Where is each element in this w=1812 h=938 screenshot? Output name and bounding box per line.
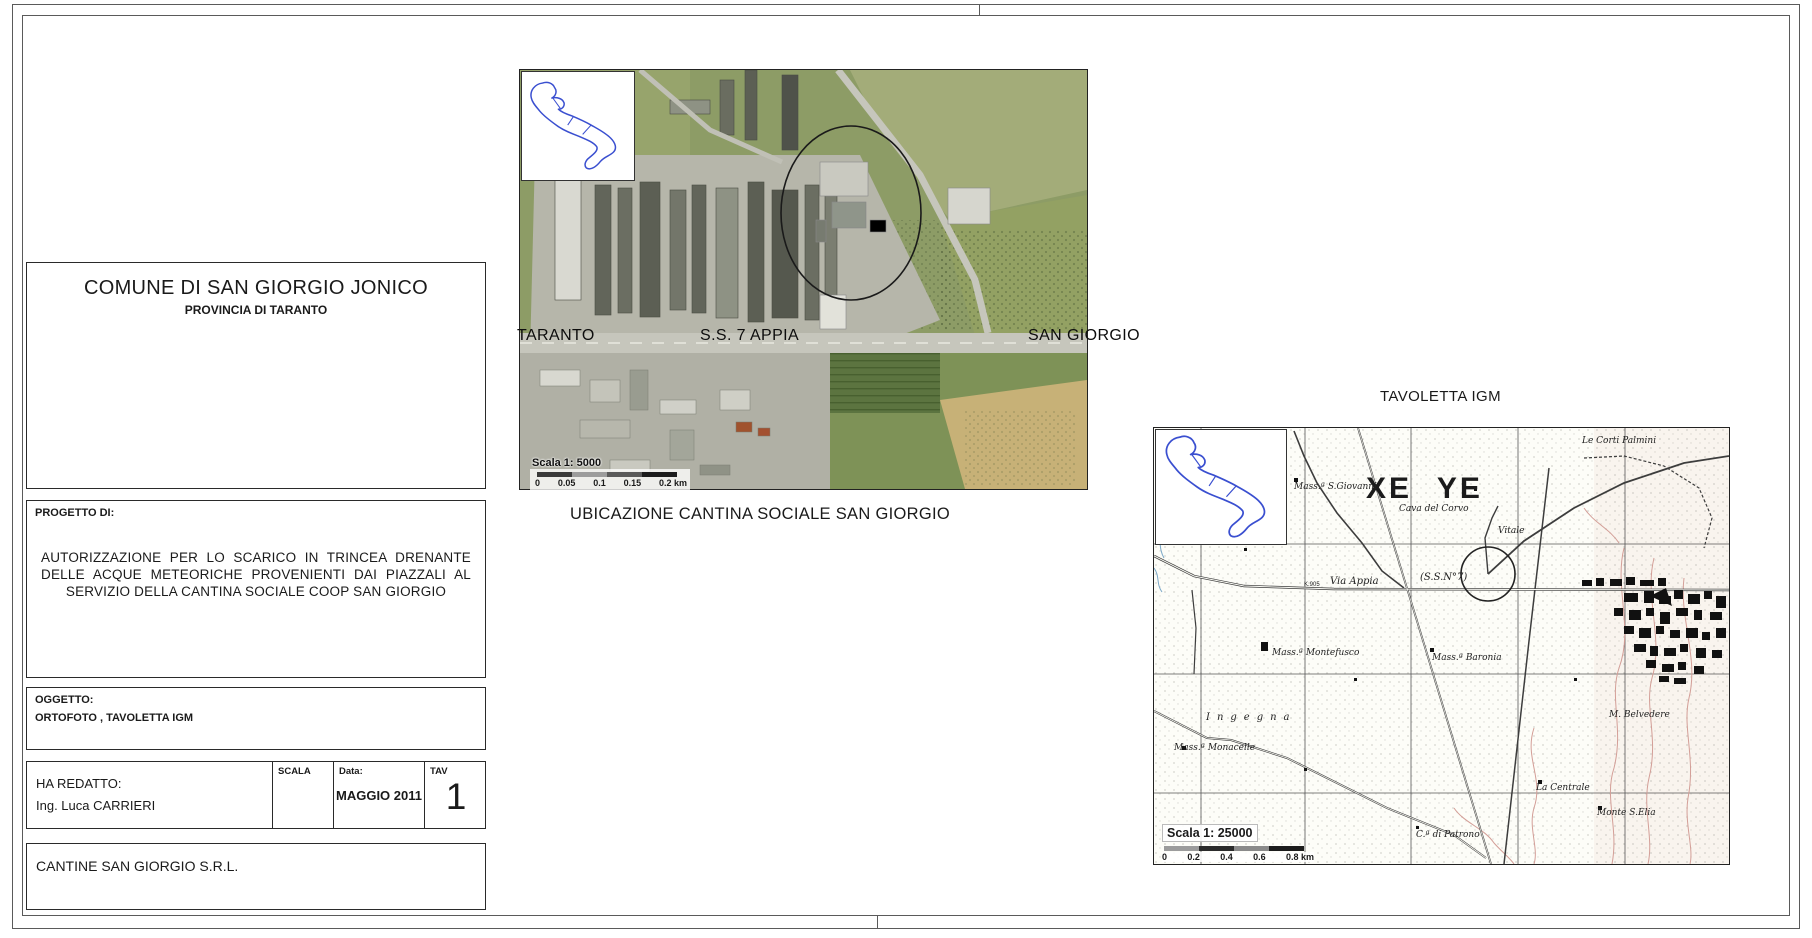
igm-toponym-label: Via Appia [1330, 576, 1379, 587]
photo-label-ss7-appia: S.S. 7 APPIA [700, 327, 799, 345]
scale-tick: 0 [535, 478, 540, 488]
igm-toponym-label: Mass.ª Montefusco [1272, 648, 1359, 658]
igm-toponym-label: Mass.ª S.Giovanni [1294, 482, 1377, 492]
igm-map: XE YE Le Corti PalminiMass.ª S.GiovanniC… [1153, 427, 1730, 865]
drawing-sheet: COMUNE DI SAN GIORGIO JONICO PROVINCIA D… [0, 0, 1812, 938]
orthophoto-map [519, 69, 1088, 490]
igm-toponym-label: Mass.ª Monacelle [1174, 743, 1255, 753]
scale-tick: 0.8 km [1286, 852, 1314, 862]
scala-label: SCALA [278, 766, 311, 777]
tav-number: 1 [425, 776, 487, 818]
scale-tick: 0.6 [1253, 852, 1266, 862]
data-cell: Data: MAGGIO 2011 [333, 762, 424, 828]
igm-toponym-label: Ingegna [1206, 712, 1297, 723]
puglia-outline-icon [522, 72, 634, 180]
progetto-label: PROGETTO DI: [35, 507, 114, 519]
data-value: MAGGIO 2011 [334, 788, 424, 803]
progetto-text: AUTORIZZAZIONE PER LO SCARICO IN TRINCEA… [41, 549, 471, 600]
scale-tick: 0.15 [624, 478, 642, 488]
igm-toponym-label: Monte S.Elia [1597, 808, 1656, 818]
igm-toponym-label: La Centrale [1536, 783, 1590, 793]
oggetto-label: OGGETTO: [35, 694, 93, 706]
title-block-header: COMUNE DI SAN GIORGIO JONICO PROVINCIA D… [26, 262, 486, 489]
redatto-box: HA REDATTO: Ing. Luca CARRIERI SCALA Dat… [26, 761, 486, 829]
igm-toponym-label: Mass.ª Baronia [1432, 653, 1502, 663]
company-name: CANTINE SAN GIORGIO S.R.L. [36, 858, 238, 874]
igm-toponym-label: Le Corti Palmini [1582, 436, 1656, 446]
redatto-name: Ing. Luca CARRIERI [36, 798, 155, 813]
igm-map-labels: Le Corti PalminiMass.ª S.GiovanniCava de… [1154, 428, 1729, 864]
ortofoto-scale-ticks: 00.050.10.150.2 km [535, 478, 687, 488]
scale-tick: 0.05 [558, 478, 576, 488]
scale-tick: 0.2 [1187, 852, 1200, 862]
scala-cell: SCALA [272, 762, 333, 828]
comune-title: COMUNE DI SAN GIORGIO JONICO [27, 277, 485, 300]
ortofoto-scale: Scala 1: 5000 00.050.10.150.2 km [530, 457, 690, 490]
oggetto-box: OGGETTO: ORTOFOTO , TAVOLETTA IGM [26, 687, 486, 750]
igm-title: TAVOLETTA IGM [1153, 388, 1728, 405]
tav-cell: TAV 1 [424, 762, 487, 828]
igm-scale-bar [1164, 846, 1304, 851]
photo-label-taranto: TARANTO [517, 327, 595, 345]
redatto-cell: HA REDATTO: Ing. Luca CARRIERI [27, 762, 272, 828]
igm-scale: Scala 1: 25000 00.20.40.60.8 km [1162, 824, 1314, 862]
ortofoto-scale-bar [537, 472, 677, 477]
data-label: Data: [339, 766, 363, 777]
igm-toponym-label: Vitale [1498, 526, 1524, 536]
igm-toponym-label: (S.S.N°7) [1420, 572, 1467, 583]
igm-scale-ticks: 00.20.40.60.8 km [1162, 852, 1314, 862]
igm-toponym-label: C.ª di Patrono [1416, 830, 1480, 840]
ortofoto-scale-title: Scala 1: 5000 [530, 457, 690, 469]
fold-mark-bottom [877, 915, 878, 929]
scale-tick: 0.4 [1220, 852, 1233, 862]
scale-tick: 0.2 km [659, 478, 687, 488]
photo-label-san-giorgio: SAN GIORGIO [1028, 327, 1140, 345]
oggetto-text: ORTOFOTO , TAVOLETTA IGM [35, 712, 193, 724]
redatto-label: HA REDATTO: [36, 776, 121, 791]
company-box: CANTINE SAN GIORGIO S.R.L. [26, 843, 486, 910]
fold-mark-top [979, 4, 980, 16]
scale-tick: 0.1 [593, 478, 606, 488]
provincia-subtitle: PROVINCIA DI TARANTO [27, 303, 485, 317]
igm-scale-title: Scala 1: 25000 [1162, 824, 1258, 842]
igm-toponym-label: M. Belvedere [1609, 710, 1670, 720]
puglia-inset-ortofoto [521, 71, 635, 181]
ortofoto-scale-panel: 00.050.10.150.2 km [530, 469, 690, 490]
progetto-box: PROGETTO DI: AUTORIZZAZIONE PER LO SCARI… [26, 500, 486, 678]
igm-toponym-label: K.905 [1304, 582, 1320, 588]
igm-toponym-label: Cava del Corvo [1399, 504, 1469, 514]
scale-tick: 0 [1162, 852, 1167, 862]
ortofoto-caption: UBICAZIONE CANTINA SOCIALE SAN GIORGIO [480, 505, 1040, 524]
